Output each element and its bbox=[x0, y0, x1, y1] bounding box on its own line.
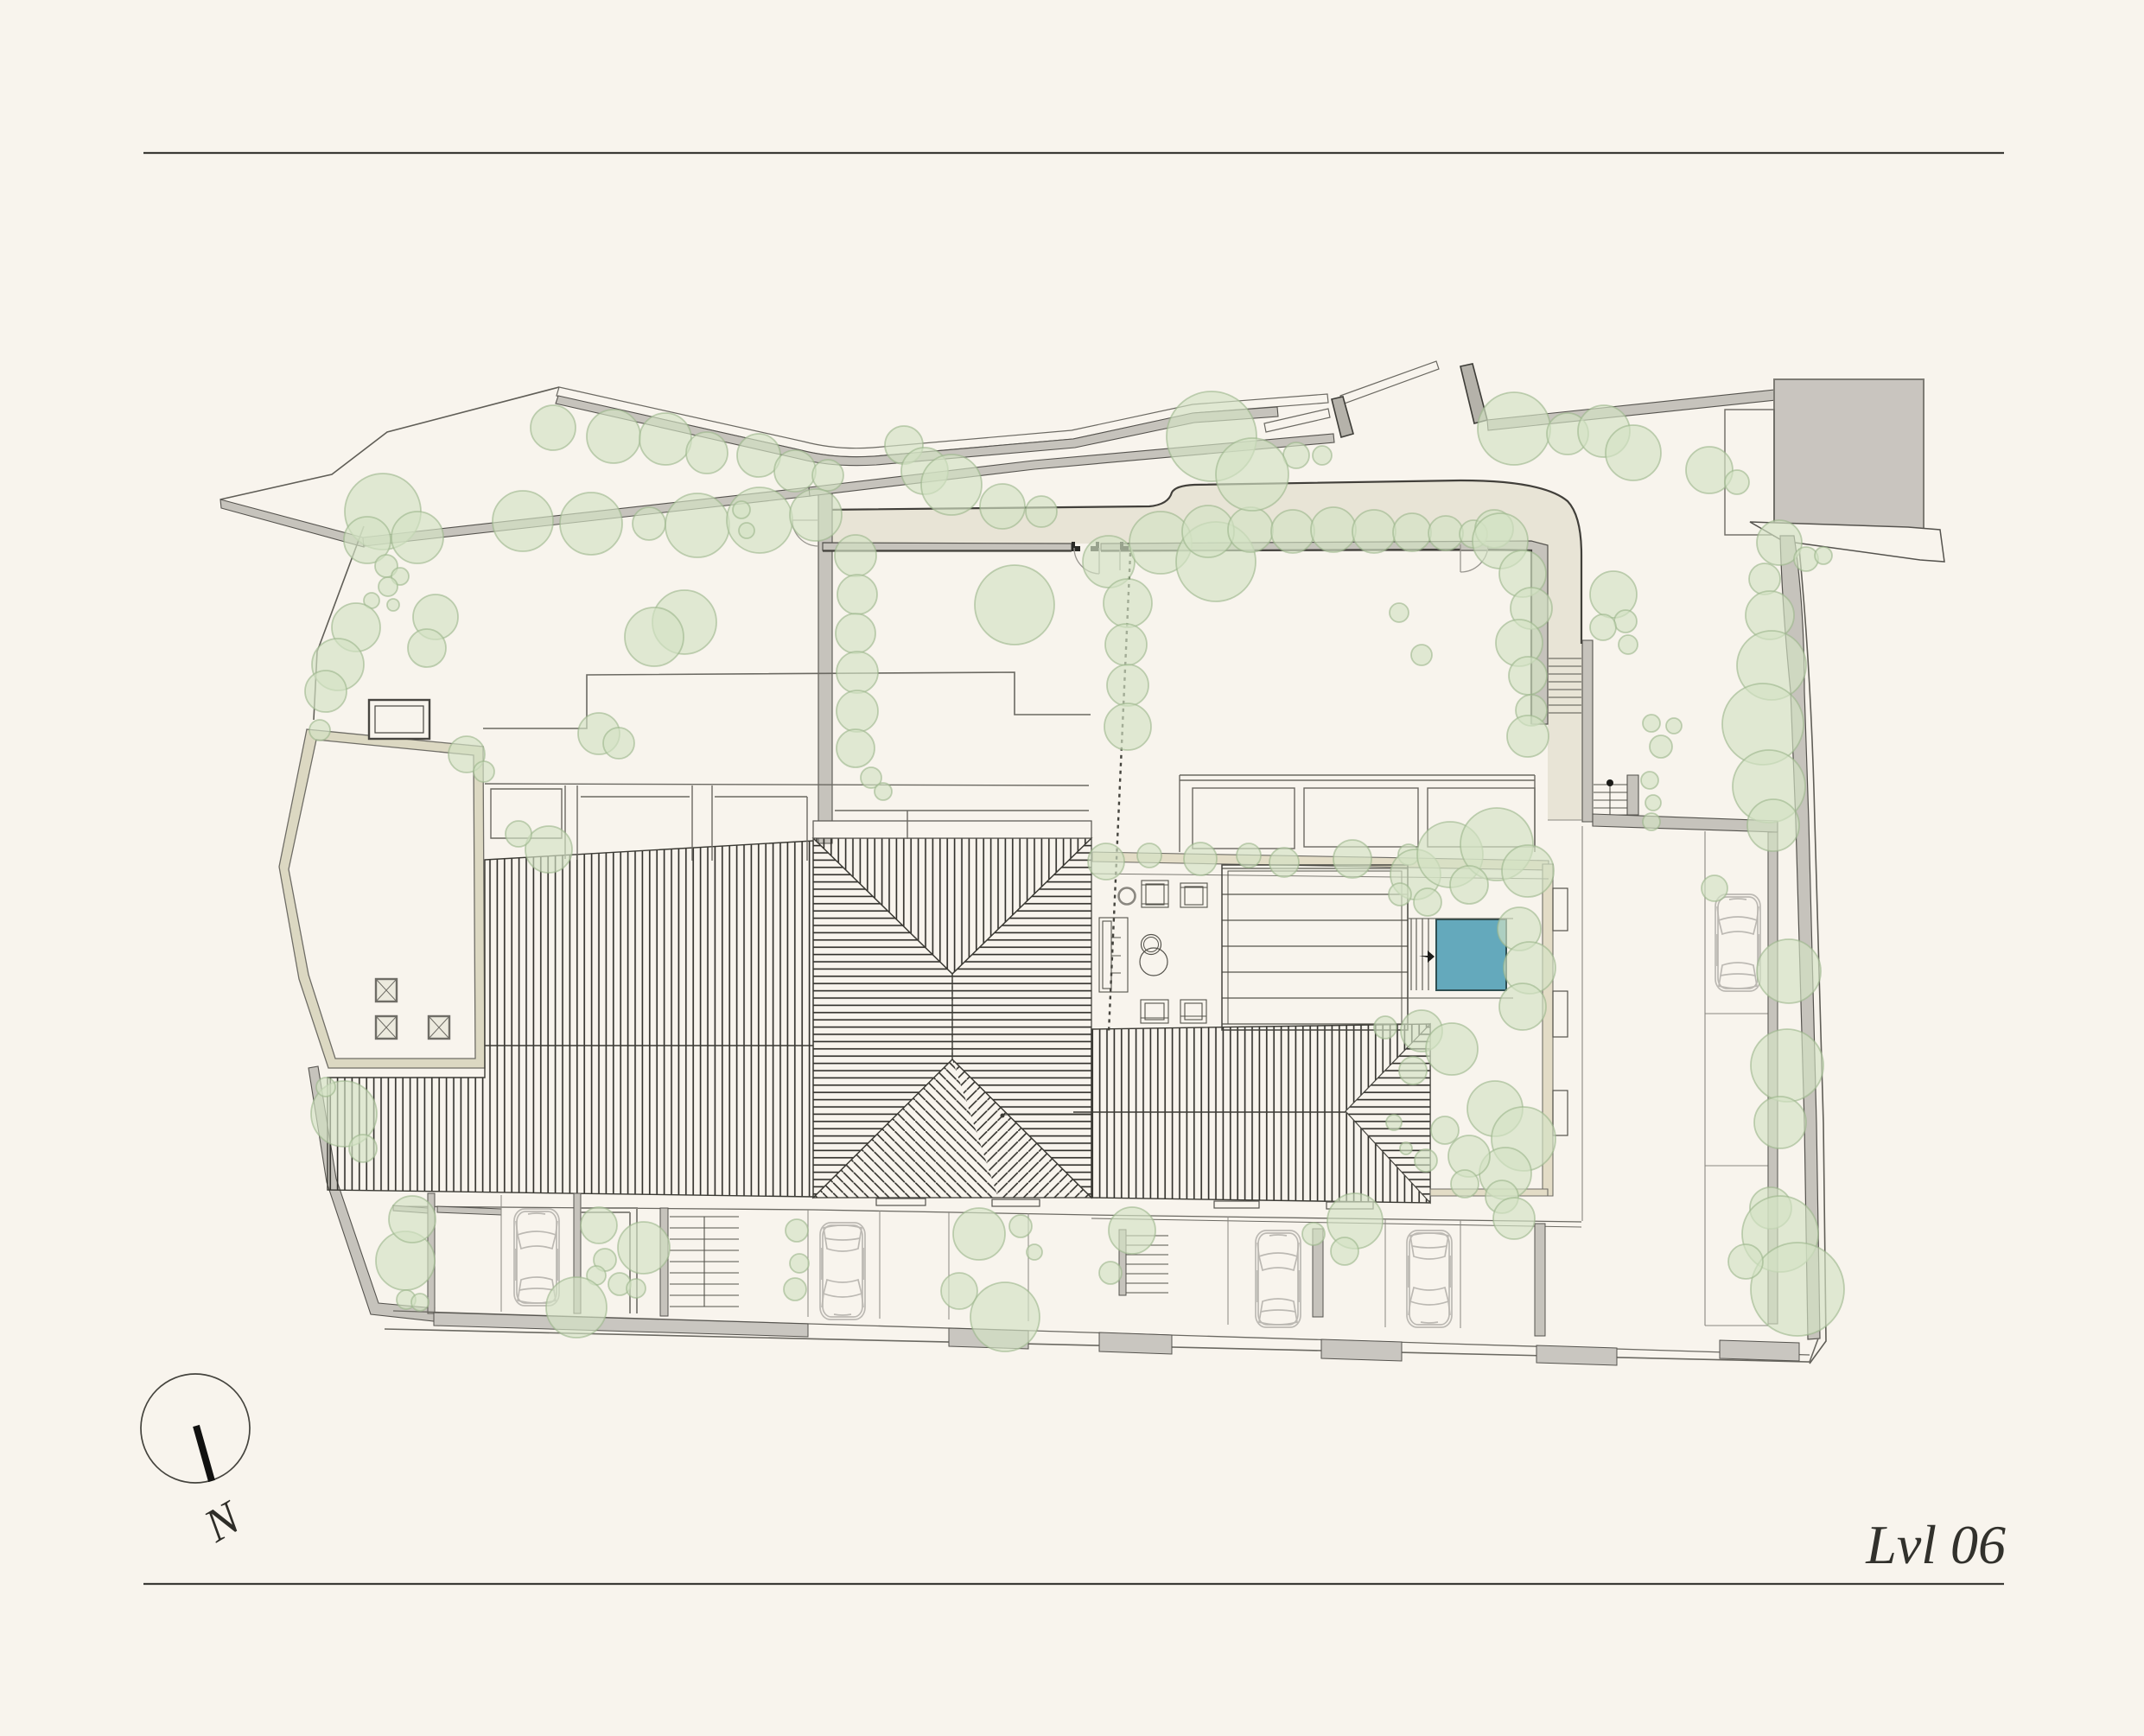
svg-text:Lvl 06: Lvl 06 bbox=[1865, 1514, 2006, 1575]
